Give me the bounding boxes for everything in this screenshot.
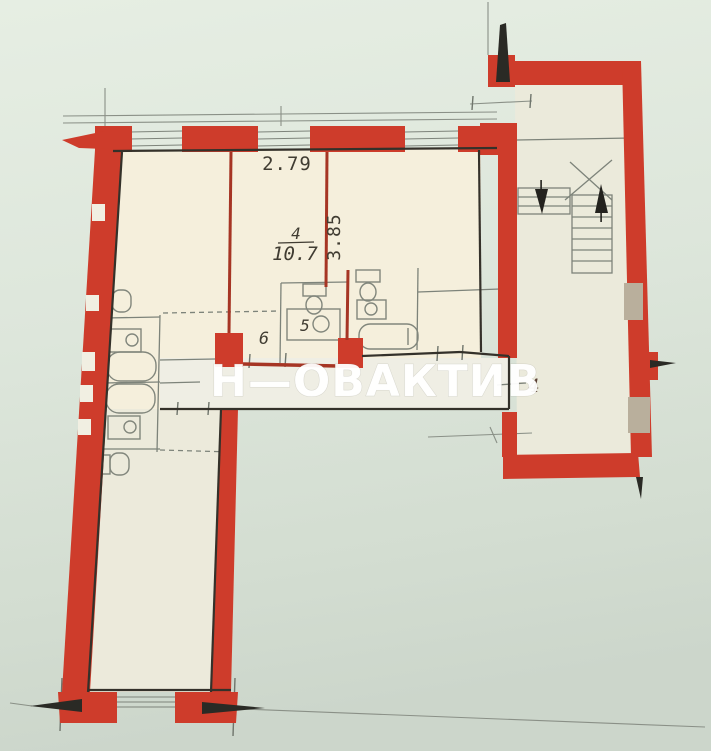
watermark: Н—ОВАКТИВ [210,356,541,407]
dimension-depth-label: 3.85 [324,213,345,260]
floor-plan-drawing: 2.79 3.85 4 10.7 5 6 4 Н—ОВАКТИВ [0,0,711,751]
room-5-label: 5 [300,316,310,335]
room-6-label: 6 [259,329,269,349]
stairwell-left-wall [498,155,517,358]
room-4-area: 10.7 [272,243,318,265]
top-wall-segment [182,126,258,152]
stairwell-junction-block [480,123,517,155]
stairwell-left-wall-lower [502,412,517,457]
floorplan-photo: 2.79 3.85 4 10.7 5 6 4 Н—ОВАКТИВ [0,0,711,751]
room-4-number: 4 [291,224,301,243]
stairwell-bottom-wall [503,453,640,479]
stairwell-top-wall [515,61,638,85]
dimension-width-label: 2.79 [262,153,312,175]
